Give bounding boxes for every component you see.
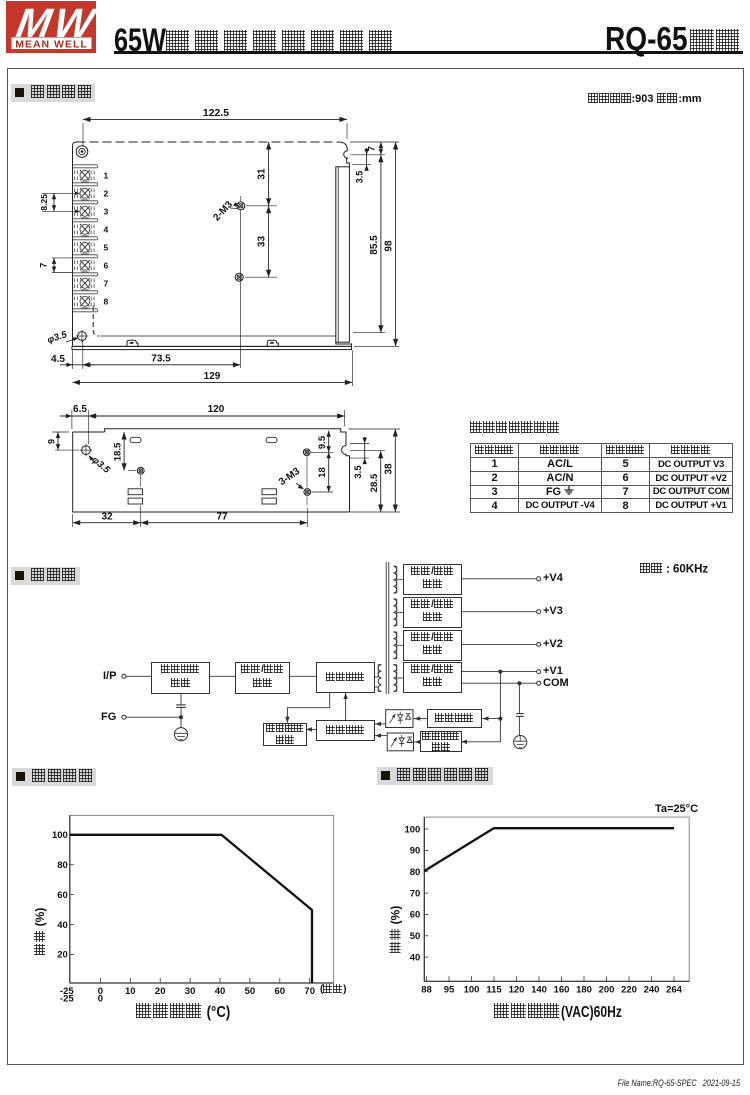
svg-text:MEAN WELL: MEAN WELL bbox=[15, 38, 88, 50]
